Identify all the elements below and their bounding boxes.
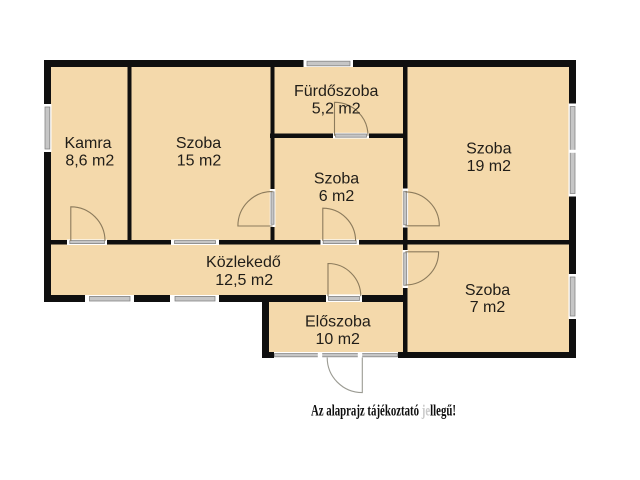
svg-text:Előszoba: Előszoba (305, 314, 371, 331)
svg-text:6 m2: 6 m2 (319, 188, 355, 205)
svg-text:8,6 m2: 8,6 m2 (65, 153, 114, 170)
svg-text:12,5 m2: 12,5 m2 (215, 272, 273, 289)
svg-text:Kamra: Kamra (64, 135, 111, 152)
svg-text:Közlekedő: Közlekedő (206, 254, 281, 271)
svg-text:5,2 m2: 5,2 m2 (312, 101, 361, 118)
svg-text:Szoba: Szoba (466, 141, 511, 158)
svg-text:Szoba: Szoba (465, 282, 510, 299)
svg-text:Fürdőszoba: Fürdőszoba (294, 83, 379, 100)
svg-text:10 m2: 10 m2 (315, 331, 360, 348)
svg-text:Szoba: Szoba (314, 171, 359, 188)
svg-text:Szoba: Szoba (176, 135, 221, 152)
svg-text:7 m2: 7 m2 (470, 299, 506, 316)
svg-text:15 m2: 15 m2 (177, 153, 222, 170)
svg-text:Az alaprajz tájékoztató jelleg: Az alaprajz tájékoztató jellegű! (311, 403, 456, 420)
svg-text:19 m2: 19 m2 (467, 158, 512, 175)
